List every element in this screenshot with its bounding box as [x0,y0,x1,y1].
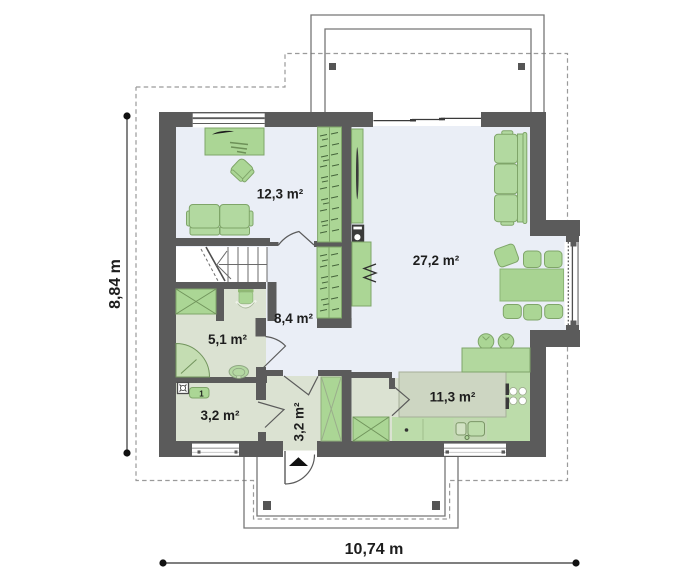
svg-text:1: 1 [199,390,204,399]
svg-text:5,1 m²: 5,1 m² [208,332,248,347]
svg-text:8,4 m²: 8,4 m² [274,311,314,326]
svg-text:27,2 m²: 27,2 m² [413,253,460,268]
svg-text:11,3 m²: 11,3 m² [430,390,476,405]
svg-text:3,2 m²: 3,2 m² [200,408,240,423]
svg-text:8,84 m: 8,84 m [107,259,124,309]
svg-text:12,3 m²: 12,3 m² [257,187,304,202]
svg-text:3,2 m²: 3,2 m² [292,402,307,442]
svg-text:10,74 m: 10,74 m [345,541,404,558]
